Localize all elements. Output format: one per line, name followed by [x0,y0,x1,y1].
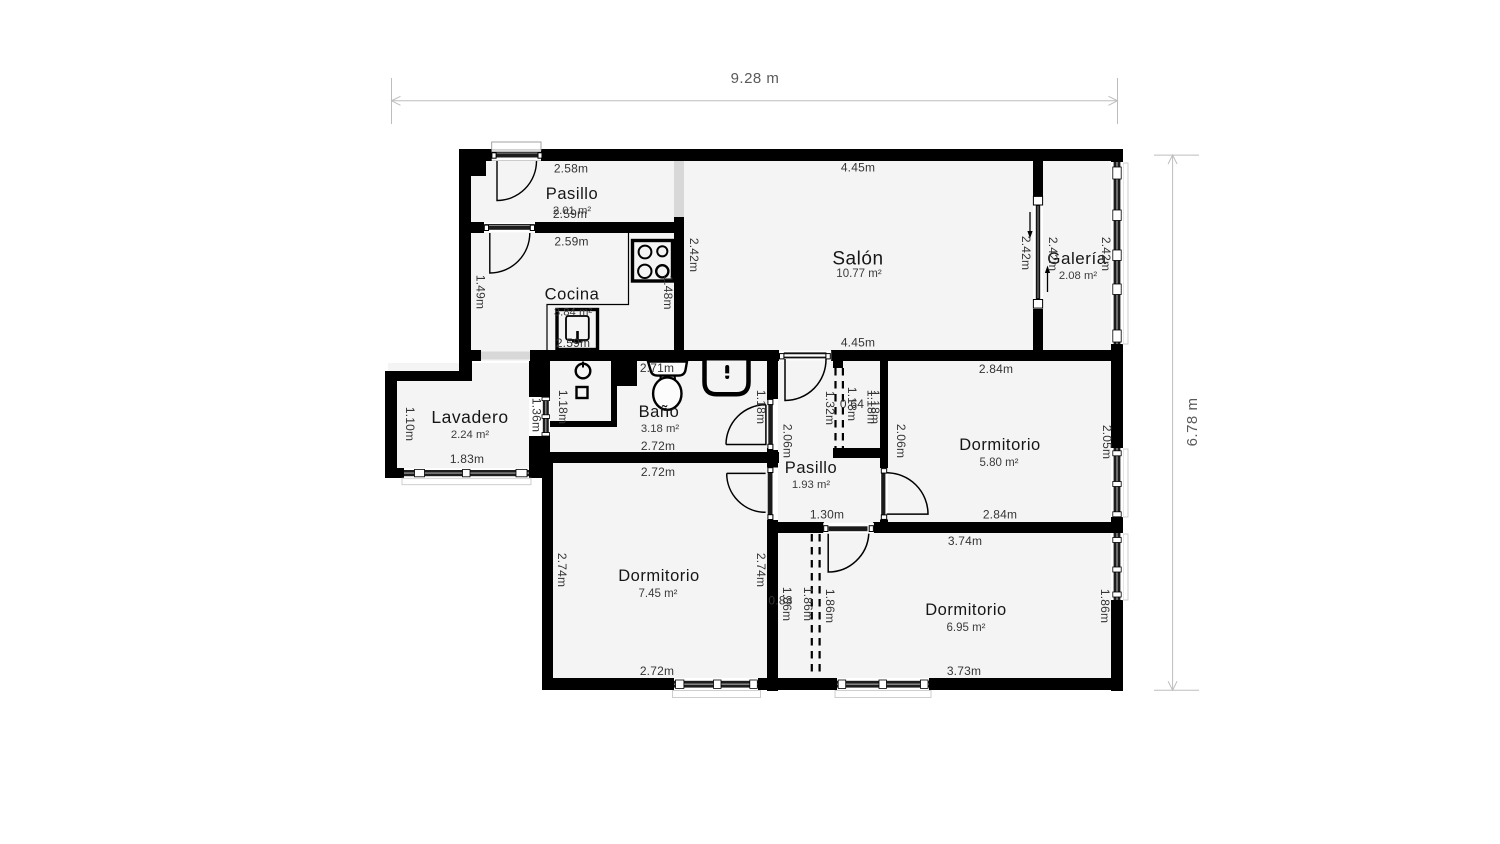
svg-text:2.42m: 2.42m [687,238,701,272]
svg-text:1.18m: 1.18m [868,390,882,424]
svg-text:1.10m: 1.10m [403,407,417,441]
svg-text:1.49m: 1.49m [474,275,488,309]
svg-text:2.59m: 2.59m [554,235,588,249]
svg-text:2.24 m²: 2.24 m² [451,429,490,441]
svg-text:1.86m: 1.86m [1098,589,1112,623]
svg-text:4.45m: 4.45m [841,161,875,175]
svg-text:1.30m: 1.30m [810,508,844,522]
svg-text:2.59m: 2.59m [553,207,587,221]
svg-text:1.48m: 1.48m [661,275,675,309]
svg-text:2.72m: 2.72m [640,664,674,678]
svg-text:1.93 m²: 1.93 m² [792,479,831,491]
svg-text:2.71m: 2.71m [640,361,674,375]
svg-text:2.42m: 2.42m [1019,236,1033,270]
svg-text:2.42m: 2.42m [1046,237,1060,271]
svg-text:2.08 m²: 2.08 m² [1059,270,1098,282]
svg-text:7.45 m²: 7.45 m² [639,588,678,600]
svg-text:0.64: 0.64 [840,397,864,411]
svg-text:Dormitorio: Dormitorio [618,567,700,585]
svg-text:2.84m: 2.84m [983,508,1017,522]
svg-text:2.06m: 2.06m [781,424,795,458]
svg-text:2.84m: 2.84m [979,362,1013,376]
svg-text:2.59m: 2.59m [556,336,590,350]
svg-text:4.45m: 4.45m [841,336,875,350]
svg-text:2.42m: 2.42m [1099,237,1113,271]
svg-text:3.84 m²: 3.84 m² [554,307,593,319]
svg-text:3.73m: 3.73m [947,664,981,678]
svg-text:6.95 m²: 6.95 m² [947,622,986,634]
svg-text:Pasillo: Pasillo [785,459,837,477]
svg-text:1.86m: 1.86m [801,587,815,621]
svg-text:2.58m: 2.58m [554,162,588,176]
svg-text:5.80 m²: 5.80 m² [980,457,1019,469]
svg-text:2.72m: 2.72m [641,465,675,479]
svg-text:1.18m: 1.18m [754,390,768,424]
svg-text:1.83m: 1.83m [450,452,484,466]
svg-text:3.18 m²: 3.18 m² [641,423,680,435]
svg-text:2.74m: 2.74m [555,553,569,587]
svg-text:Lavadero: Lavadero [431,407,508,427]
svg-text:1.36m: 1.36m [529,398,543,432]
svg-text:1.18m: 1.18m [556,390,570,424]
svg-text:2.06m: 2.06m [894,424,908,458]
svg-text:6.78 m: 6.78 m [1184,398,1201,447]
svg-text:Dormitorio: Dormitorio [925,601,1007,619]
svg-text:1.86m: 1.86m [823,589,837,623]
svg-text:Pasillo: Pasillo [546,185,598,203]
svg-text:Cocina: Cocina [545,286,600,304]
svg-text:2.74m: 2.74m [754,553,768,587]
svg-text:2.72m: 2.72m [641,439,675,453]
svg-text:Salón: Salón [832,249,883,270]
svg-text:1.32m: 1.32m [823,391,837,425]
svg-text:10.77 m²: 10.77 m² [836,268,882,280]
svg-text:0.83: 0.83 [768,594,792,608]
svg-text:Dormitorio: Dormitorio [959,436,1041,454]
svg-text:9.28 m: 9.28 m [731,70,780,87]
svg-text:3.74m: 3.74m [948,534,982,548]
svg-text:2.05m: 2.05m [1100,425,1114,459]
svg-text:Baño: Baño [639,403,680,421]
